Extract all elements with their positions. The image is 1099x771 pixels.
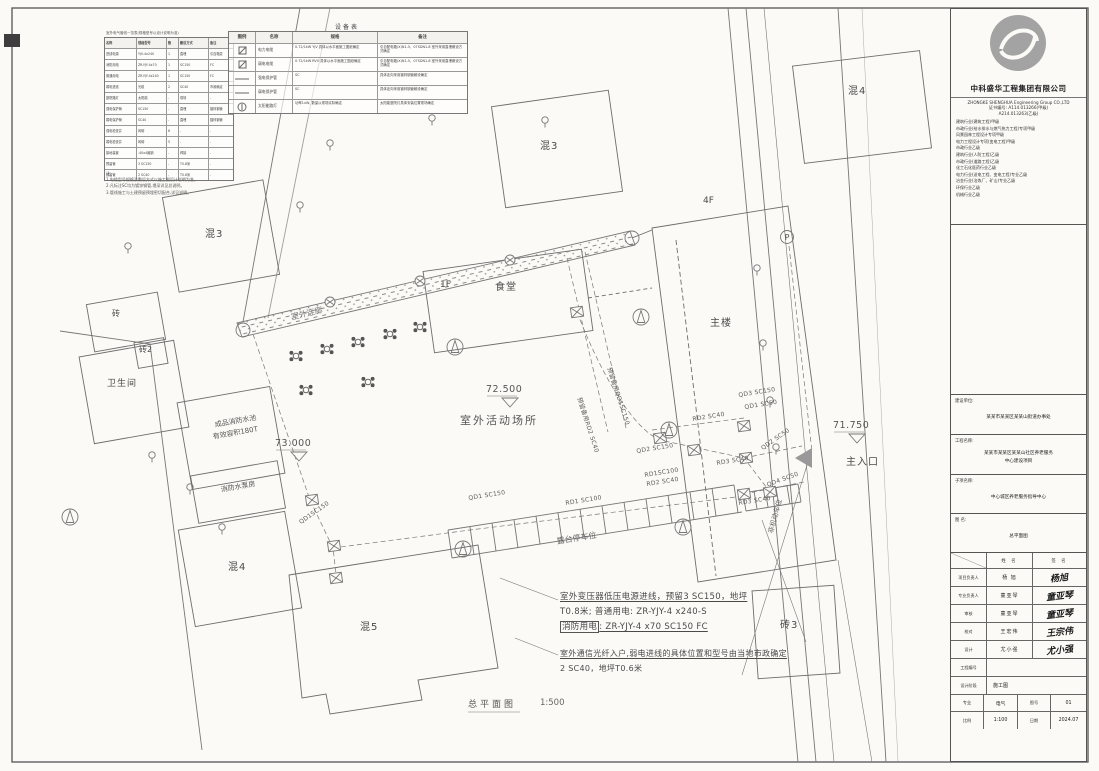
area-label-activity: 室外活动场所 [460, 412, 538, 428]
building-label-hun5: 混5 [360, 618, 378, 633]
area-label-entrance: 主入口 [846, 453, 879, 468]
building-label-toilet: 卫生间 [107, 376, 137, 389]
floor-label-4f: 4F [703, 196, 714, 206]
signature-row: 专业负责人 童亚琴 童亚琴 [951, 587, 1086, 605]
equipment-header-row: 图例 名称 规格 备注 [229, 32, 467, 44]
elevation-73000: 73.000 [275, 438, 311, 449]
spec-row: 接地装置-40x4扁钢-焊接- [105, 148, 233, 159]
equipment-table-caption: 设备表 [228, 22, 466, 31]
signature-row: 设计 尤小强 尤小强 [951, 641, 1086, 659]
signature-row: 校对 王宏伟 王宗伟 [951, 623, 1086, 641]
company-name-en: ZHONGKE SHENGHUA Engineering Group CO.,L… [951, 97, 1086, 105]
note-1-line-1: 室外变压器低压电源进线，预留3 SC150，地坪 [560, 590, 747, 605]
parking-symbol-letter: P [785, 233, 790, 242]
drawing-name-value: 总平面图 [951, 534, 1086, 540]
client-label: 建设单位: [955, 398, 974, 404]
signature-table: 姓 名 签 名 项目负责人 杨 旭 杨旭 专业负责人 童亚琴 童亚琴 审核 童亚… [951, 553, 1086, 729]
handwritten-signature: 童亚琴 [1045, 588, 1073, 604]
qualification-list: 建筑行业(建筑工程)甲级市政行业(给水排水与燃气热力工程)专项甲级 风景园林工程… [951, 117, 1086, 198]
handwritten-signature: 童亚琴 [1045, 606, 1073, 622]
building-label-hun4-top: 混4 [848, 82, 866, 97]
client-value: 某某市某某区某某山街道办事处 [951, 415, 1086, 421]
spec-row: 弱电检查井砖砌5-- [105, 137, 233, 148]
junction-circle-icon [415, 276, 425, 286]
project-value-line1: 某某市某某区某某山社区养老服务 [951, 451, 1086, 457]
junction-circle-icon [325, 297, 335, 307]
signature-header-row: 姓 名 签 名 [951, 553, 1086, 569]
building-label-main: 主楼 [710, 314, 732, 329]
note-block-2: 室外通信光纤入户,弱电进线的具体位置和型号由当地市政确定 2 SC40，地坪T0… [560, 646, 787, 676]
spec-table: 名称规格型号数敷设方式备注 进线电源YJV-4x2401直埋引自箱变 消防用电Z… [104, 37, 234, 181]
spec-row: 消防用电ZR-YJY-4x701SC150FC [105, 60, 233, 71]
spec-table-caption: 室外电气管线一览表(规格型号以设计说明为准) [106, 31, 179, 36]
parking-symbol-icon: P [781, 231, 794, 244]
drawing-scale: 1:500 [540, 698, 565, 708]
building-label-hun3-mid: 混3 [540, 137, 558, 152]
spec-row: 强电检查井砖砌6-- [105, 126, 233, 137]
scan-corner-mark [4, 34, 20, 47]
note-1-line-3: 消防用电: ZR-YJY-4 x70 SC150 FC [560, 620, 747, 635]
outdoor-table-icons [290, 322, 426, 394]
subproject-label: 子项名称: [955, 478, 974, 484]
equipment-row: 弱电电缆 0.72/1kW RVV 具体以水平面施工图纸确定 引自配电箱(X)N… [229, 58, 467, 72]
spec-header-row: 名称规格型号数敷设方式备注 [105, 38, 233, 49]
drawing-name-section: 图 名: 总平面图 [951, 514, 1086, 553]
title-block-blank-section [951, 225, 1086, 395]
company-logo [951, 9, 1086, 77]
project-section: 工程名称: 某某市某某区某某山社区养老服务 中心建设项目 [951, 435, 1086, 475]
signature-header-diagonal [951, 553, 987, 568]
spec-row: 庭院路灯太阳能-现场- [105, 93, 233, 104]
equipment-table: 图例 名称 规格 备注 电力电缆 0.72/1kW YJV 具体以水平面施工图纸… [228, 31, 468, 114]
junction-circle-icon [505, 255, 515, 265]
drawing-name-label: 图 名: [955, 517, 966, 523]
building-label-zhuan: 砖 [112, 308, 120, 319]
spec-row: 进线电源YJV-4x2401直埋引自箱变 [105, 49, 233, 60]
signature-row: 项目负责人 杨 旭 杨旭 [951, 569, 1086, 587]
note-2-line-2: 2 SC40，地坪T0.6米 [560, 661, 787, 676]
project-number-row: 工程编号 [951, 659, 1086, 677]
lamp-icon [229, 100, 256, 113]
handwritten-signature: 杨旭 [1050, 570, 1069, 585]
spec-row: 弱电保护管SC40-直埋镀锌钢管 [105, 115, 233, 126]
building-label-hun4-bottom: 混4 [228, 558, 246, 573]
signature-row: 审核 童亚琴 童亚琴 [951, 605, 1086, 623]
handwritten-signature: 王宗伟 [1045, 624, 1073, 640]
building-label-zhuan2: 砖2 [139, 344, 152, 355]
spec-row: 弱电进线光缆2SC40市政确定 [105, 82, 233, 93]
company-name-cn: 中科盛华工程集团有限公司 [951, 83, 1086, 94]
equipment-row: 强电保护管 SC 具体走向采用镀锌钢管敷设确定 [229, 72, 467, 86]
title-block-company-section: 中科盛华工程集团有限公司 ZHONGKE SHENGHUA Engineerin… [951, 9, 1086, 225]
spec-row: 强电保护管SC150-直埋镀锌钢管 [105, 104, 233, 115]
client-section: 建设单位: 某某市某某区某某山街道办事处 [951, 395, 1086, 435]
building-label-hun3-left: 混3 [205, 225, 223, 240]
note-1-line-2: T0.8米; 普通用电: ZR-YJY-4 x240-S [560, 605, 747, 620]
entrance-arrow-icon [795, 448, 812, 468]
spec-table-notes: 注: 1.电缆型号规格及敷设方式以施工图设计说明为准。 2.凡标注SC均为镀锌钢… [106, 171, 198, 196]
equipment-row: 弱电保护管 SC 具体走向采用镀锌钢管敷设确定 [229, 86, 467, 100]
subproject-section: 子项名称: 中心城区养老服务指导中心 [951, 475, 1086, 514]
spec-row: 预留管3 SC150-T0.8米- [105, 159, 233, 170]
elevation-72500: 72.500 [486, 384, 522, 395]
scale-date-row: 比例 1:100 日期 2024.07 [951, 712, 1086, 729]
floor-label-1f: 1F [440, 280, 451, 290]
cable-tray-icon [229, 58, 256, 71]
drawing-title: 总平面图 [468, 697, 516, 710]
elevation-71750: 71.750 [833, 420, 869, 431]
drawing-sheet: P 混4 混3 混3 砖 砖2 卫生间 成品消防水池 有效容积180T 消防水泵… [0, 0, 1099, 771]
note-block-1: 室外变压器低压电源进线，预留3 SC150，地坪 T0.8米; 普通用电: ZR… [560, 590, 747, 635]
major-figure-row: 专业 电气 图号 01 [951, 695, 1086, 712]
design-stage-row: 设计阶段 施工图 [951, 677, 1086, 695]
note-2-line-1: 室外通信光纤入户,弱电进线的具体位置和型号由当地市政确定 [560, 646, 787, 661]
building-label-zhuan3: 砖3 [780, 616, 798, 631]
handwritten-signature: 尤小强 [1045, 642, 1073, 658]
subproject-value: 中心城区养老服务指导中心 [951, 495, 1086, 501]
building-label-canteen: 食堂 [495, 278, 517, 293]
title-block: 中科盛华工程集团有限公司 ZHONGKE SHENGHUA Engineerin… [950, 8, 1087, 762]
conduit-line-icon [229, 86, 256, 99]
cable-tray-icon [229, 44, 256, 57]
project-label: 工程名称: [955, 438, 974, 444]
design-stage-value: 施工图 [987, 677, 1086, 694]
fire-power-box: 消防用电 [560, 621, 599, 633]
spec-row: 普通用电ZR-YJY-4x2401SC150FC [105, 71, 233, 82]
equipment-row: 电力电缆 0.72/1kW YJV 具体以水平面施工图纸确定 引自配电箱(X)N… [229, 44, 467, 58]
conduit-line-icon [229, 72, 256, 85]
equipment-row: 太阳能路灯 功率1xW, 数量以现场实际确定 太阳能庭院灯具体安装位置现场确定 [229, 100, 467, 113]
project-number-value [987, 659, 1086, 676]
project-value-line2: 中心建设项目 [951, 459, 1086, 465]
